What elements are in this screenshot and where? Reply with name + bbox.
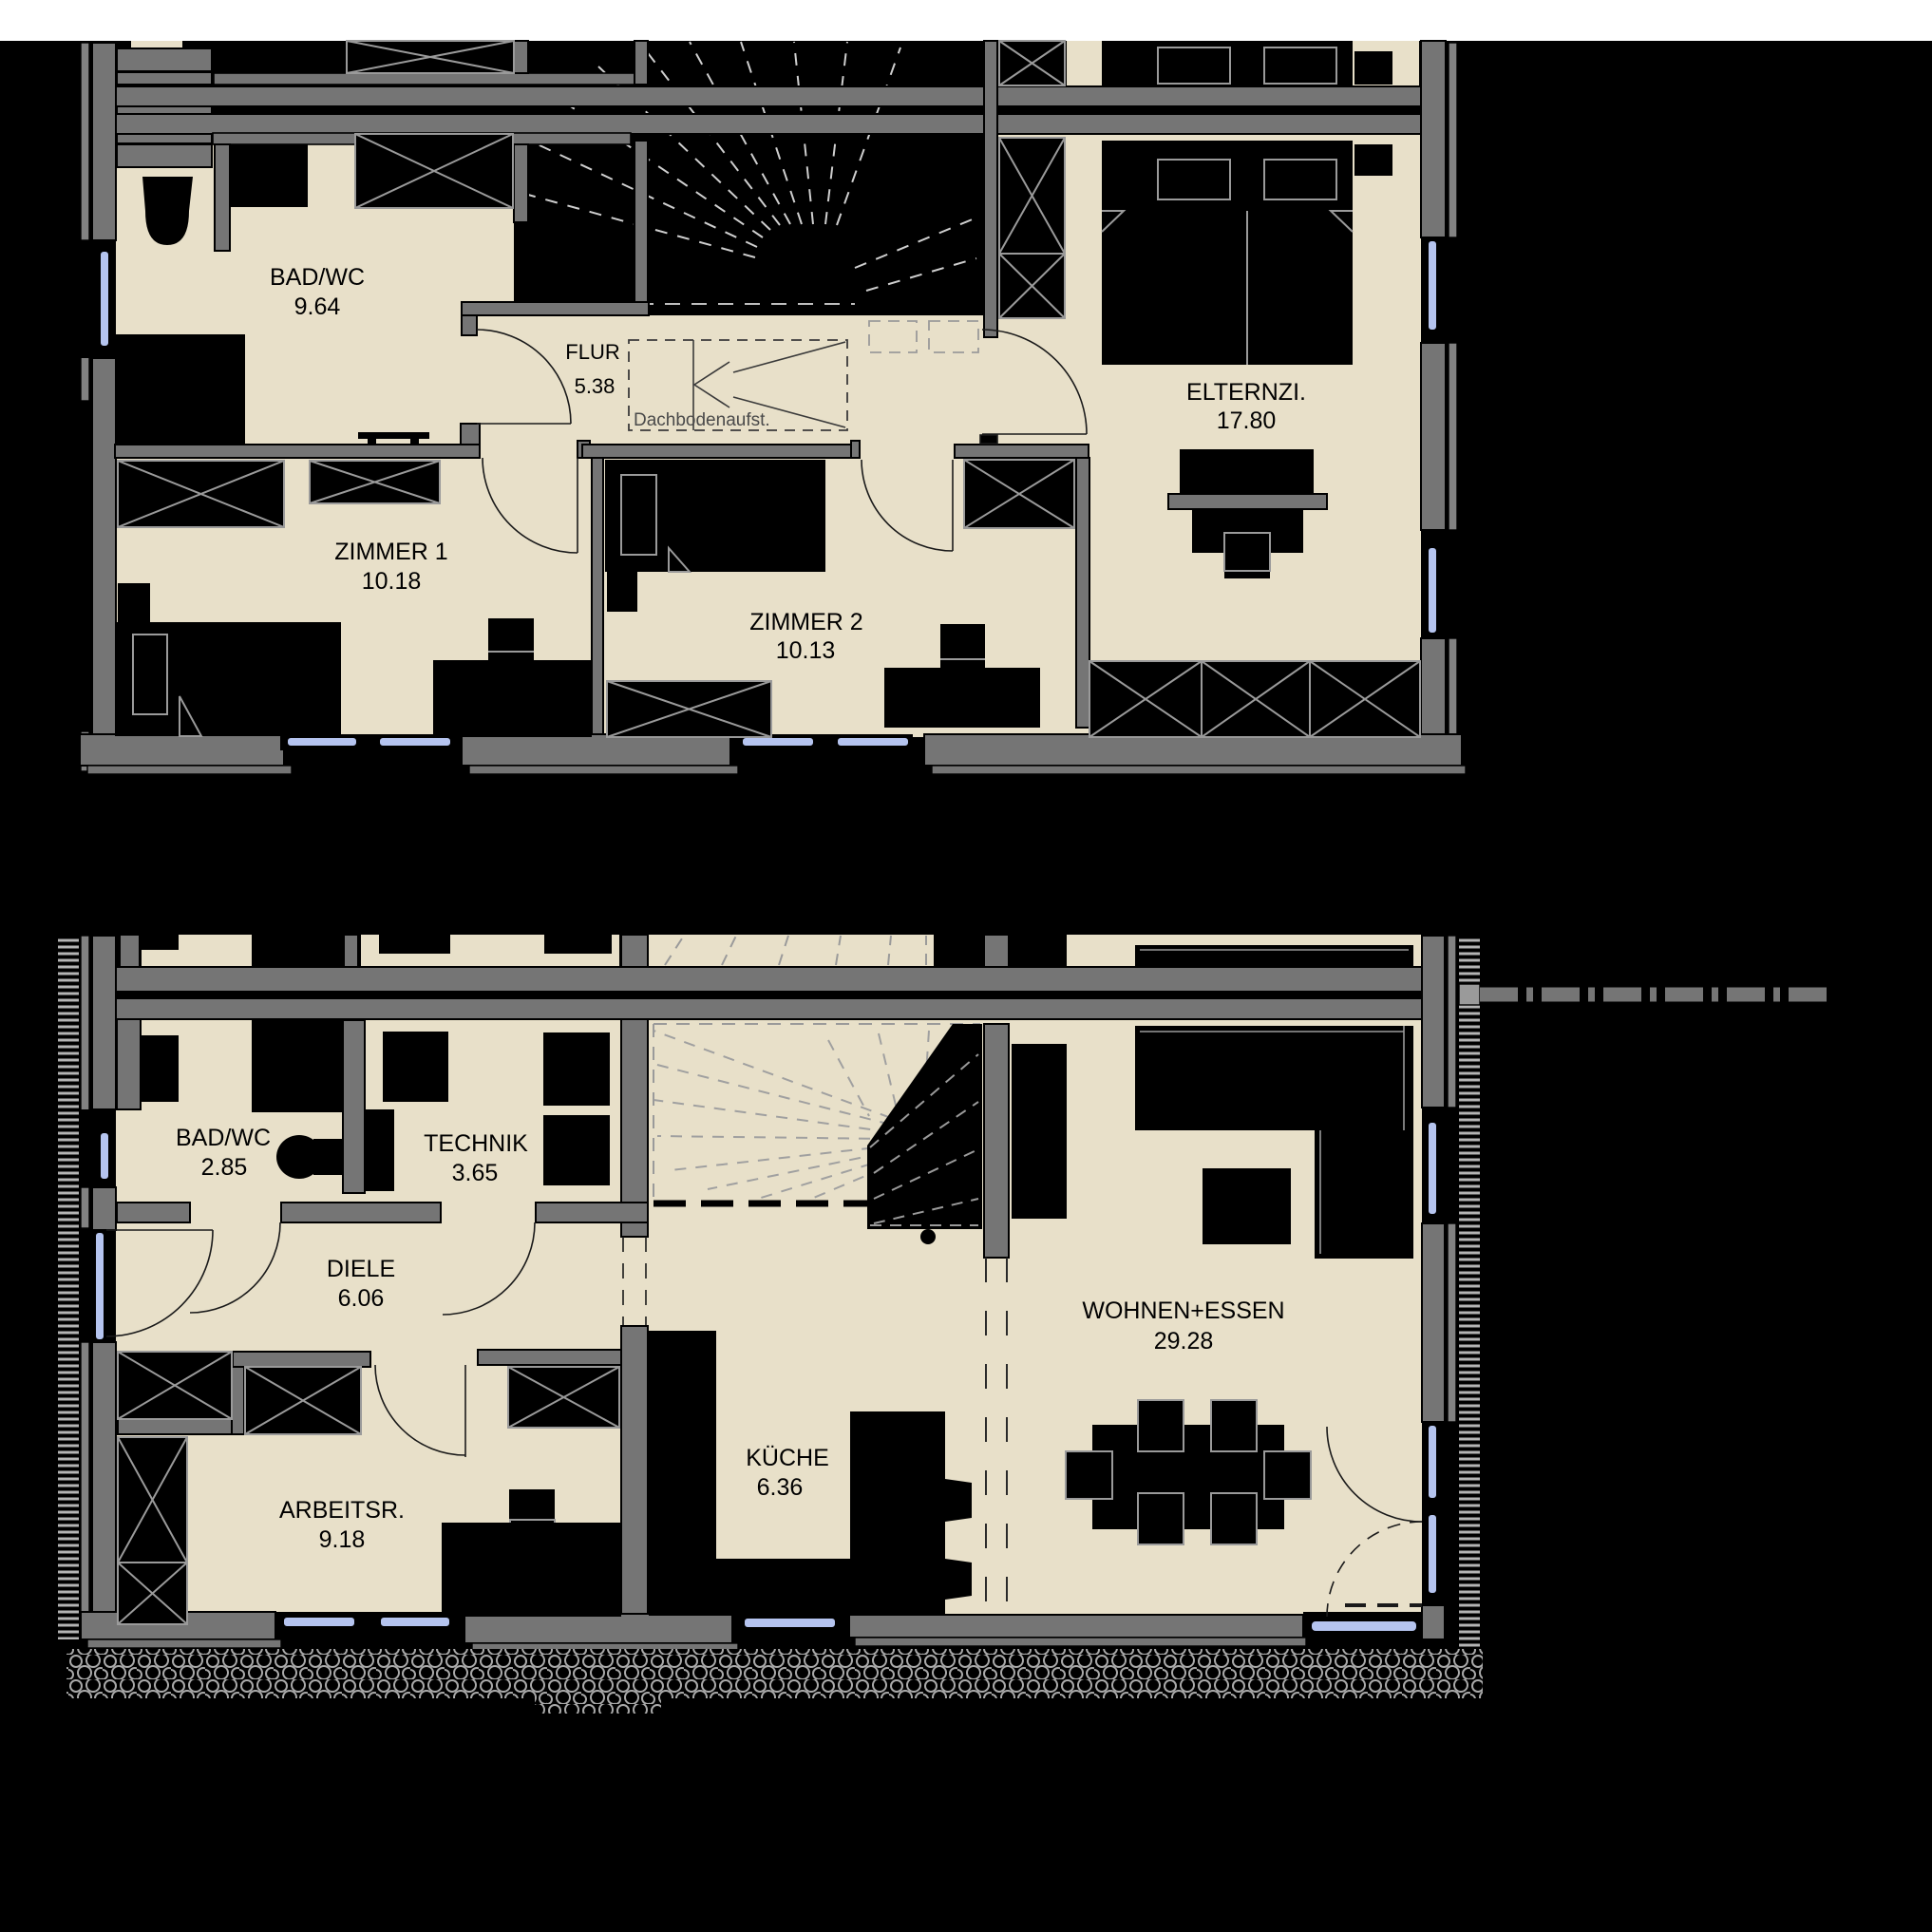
svg-text:10.13: 10.13	[776, 637, 836, 664]
svg-text:5.38: 5.38	[575, 374, 616, 398]
svg-text:FLUR: FLUR	[565, 340, 619, 364]
svg-text:9.64: 9.64	[294, 294, 341, 320]
svg-text:BAD/WC: BAD/WC	[176, 1125, 271, 1151]
svg-text:TECHNIK: TECHNIK	[424, 1130, 528, 1157]
svg-text:2.85: 2.85	[201, 1154, 248, 1181]
svg-text:9.18: 9.18	[319, 1526, 366, 1553]
svg-text:3.65: 3.65	[452, 1160, 499, 1186]
svg-text:ZIMMER 1: ZIMMER 1	[334, 539, 447, 565]
svg-text:Dachbodenaufst.: Dachbodenaufst.	[634, 410, 770, 430]
svg-text:BAD/WC: BAD/WC	[270, 264, 365, 291]
svg-text:ELTERNZI.: ELTERNZI.	[1186, 379, 1306, 406]
svg-text:ARBEITSR.: ARBEITSR.	[279, 1497, 405, 1524]
svg-text:10.18: 10.18	[362, 568, 422, 595]
svg-text:6.06: 6.06	[338, 1285, 385, 1312]
svg-text:ZIMMER 2: ZIMMER 2	[749, 609, 862, 635]
svg-text:DIELE: DIELE	[327, 1256, 395, 1282]
svg-text:29.28: 29.28	[1154, 1328, 1214, 1354]
svg-text:WOHNEN+ESSEN: WOHNEN+ESSEN	[1082, 1297, 1284, 1324]
svg-text:KÜCHE: KÜCHE	[746, 1445, 829, 1471]
svg-text:6.36: 6.36	[757, 1474, 804, 1501]
svg-text:17.80: 17.80	[1217, 407, 1277, 434]
